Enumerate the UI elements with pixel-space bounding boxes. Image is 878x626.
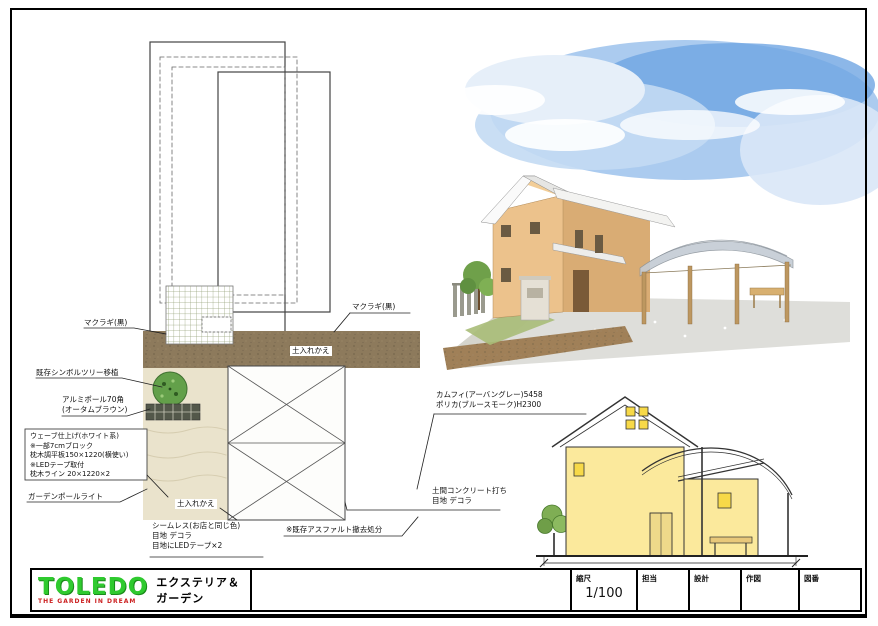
field-scale-label: 縮尺 <box>576 573 591 584</box>
label-asphalt: ※既存アスファルト撤去処分 <box>286 525 382 535</box>
building-dashed-outline-2 <box>172 67 285 295</box>
label-existing-tree: 既存シンボルツリー移植 <box>36 368 119 378</box>
label-concrete-spec: 土間コンクリート打ち 目地 デコラ <box>432 486 507 506</box>
label-alu-pole: アルミポール70角 (オータムブラウン) <box>62 395 127 415</box>
title-block: TOLEDO THE GARDEN IN DREAM エクステリア＆ガーデン 縮… <box>30 568 862 612</box>
drawing-canvas <box>0 0 878 626</box>
label-makuragi-top: マクラギ(黒) <box>352 302 395 312</box>
label-carport-spec: カムフィ(アーバングレー)5458 ポリカ(ブルースモーク)H2300 <box>436 390 543 410</box>
label-soil-top: 土入れかえ <box>290 346 332 356</box>
ground-dimension <box>536 556 808 567</box>
main-roof <box>552 397 698 447</box>
gate-pillar <box>519 276 551 320</box>
left-window <box>574 463 584 476</box>
blank-cell <box>250 570 570 610</box>
elevation-tree-icon <box>538 505 570 556</box>
sleeper-grid <box>166 286 233 344</box>
concrete-slab <box>228 366 345 520</box>
field-sakuzu: 作図 <box>740 570 798 610</box>
field-tantou-label: 担当 <box>642 573 657 584</box>
logo-subtitle: THE GARDEN IN DREAM <box>38 598 148 605</box>
logo-text: TOLEDO <box>38 576 148 598</box>
building-dashed-outline <box>160 57 297 303</box>
door <box>573 270 589 312</box>
elevation-door <box>650 513 672 556</box>
label-makuragi-left: マクラギ(黒) <box>84 318 127 328</box>
field-tantou: 担当 <box>636 570 688 610</box>
field-sakuzu-label: 作図 <box>746 573 761 584</box>
field-scale: 縮尺 1/100 <box>570 570 636 610</box>
building-outline-2 <box>218 72 330 312</box>
paver-strip <box>146 404 200 420</box>
label-soil-bottom: 土入れかえ <box>175 499 217 509</box>
logo-cell: TOLEDO THE GARDEN IN DREAM エクステリア＆ガーデン <box>32 570 250 610</box>
label-seamless: シームレス(お店と同じ色) 目地 デコラ 目地にLEDテープ×2 <box>152 521 240 551</box>
field-zuban-label: 図番 <box>804 573 819 584</box>
field-zuban: 図番 <box>798 570 860 610</box>
perspective-render <box>443 40 878 370</box>
shrub-icon <box>460 261 497 310</box>
field-sekkei-label: 設計 <box>694 573 709 584</box>
symbol-tree-icon <box>153 372 187 406</box>
field-scale-value: 1/100 <box>572 586 636 601</box>
sky <box>445 40 878 205</box>
field-sekkei: 設計 <box>688 570 740 610</box>
company-tagline: エクステリア＆ガーデン <box>156 574 250 606</box>
label-wave-block: ウェーブ仕上げ(ホワイト系) ※一部7cmブロック 枕木調平板150×1220(… <box>30 432 129 480</box>
company-logo: TOLEDO THE GARDEN IN DREAM <box>38 576 148 605</box>
label-garden-light: ガーデンポールライト <box>28 492 103 502</box>
front-elevation <box>536 397 808 567</box>
